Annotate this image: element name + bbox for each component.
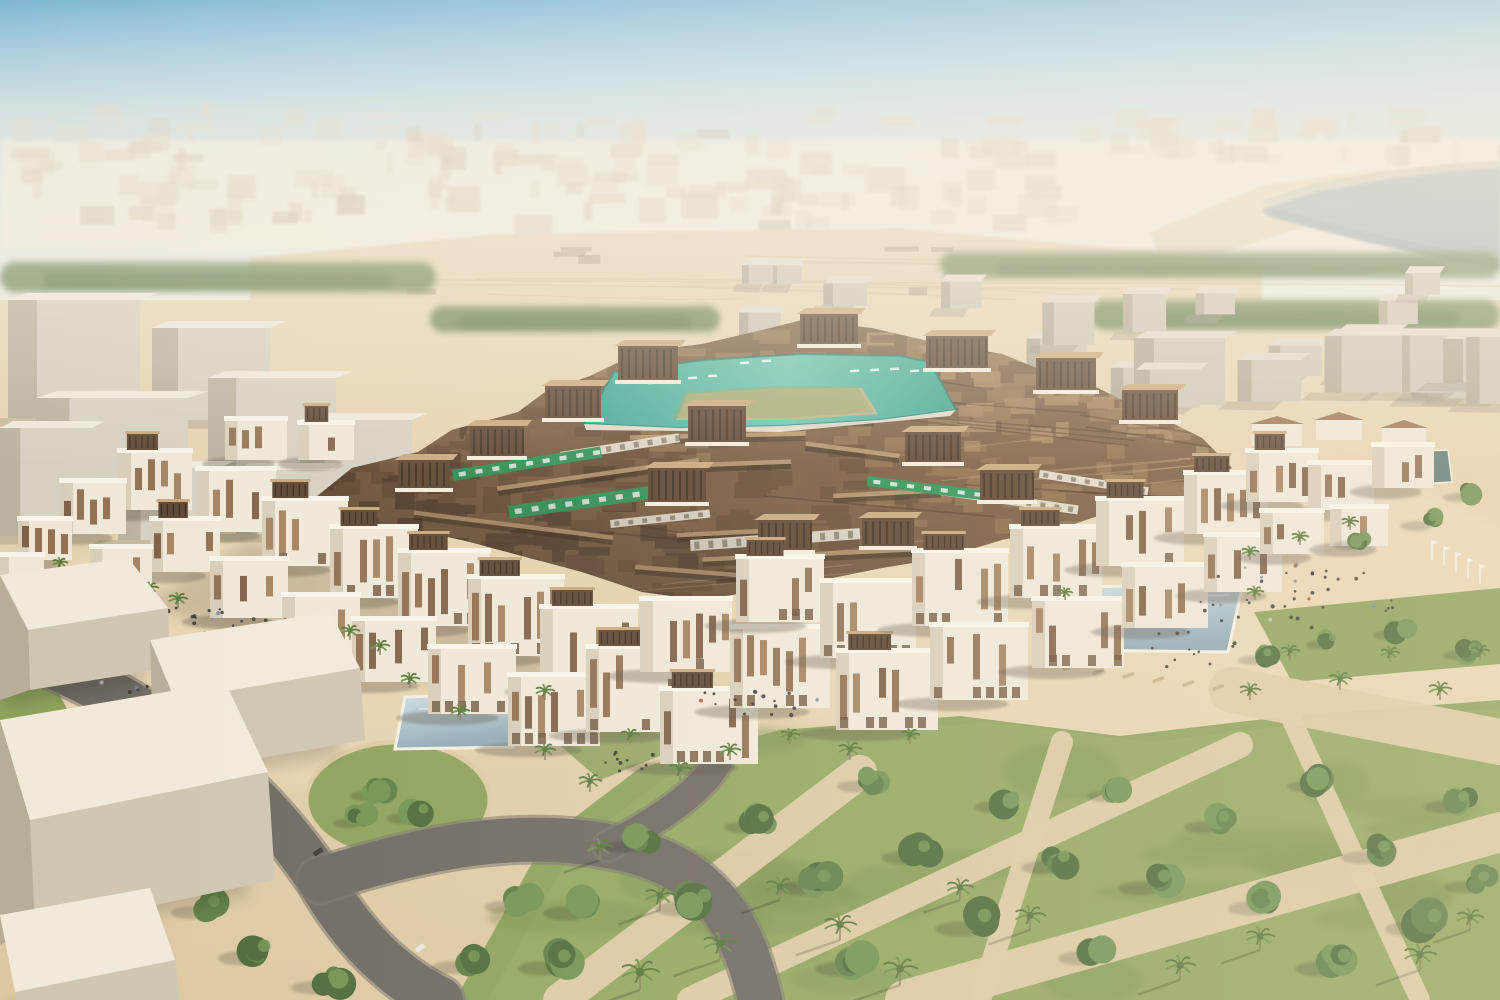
rendering-canvas: Aerial architectural rendering of a souq… [0,0,1500,1000]
aerial-render [0,0,1500,1000]
atmospheric-haze [0,0,1500,1000]
